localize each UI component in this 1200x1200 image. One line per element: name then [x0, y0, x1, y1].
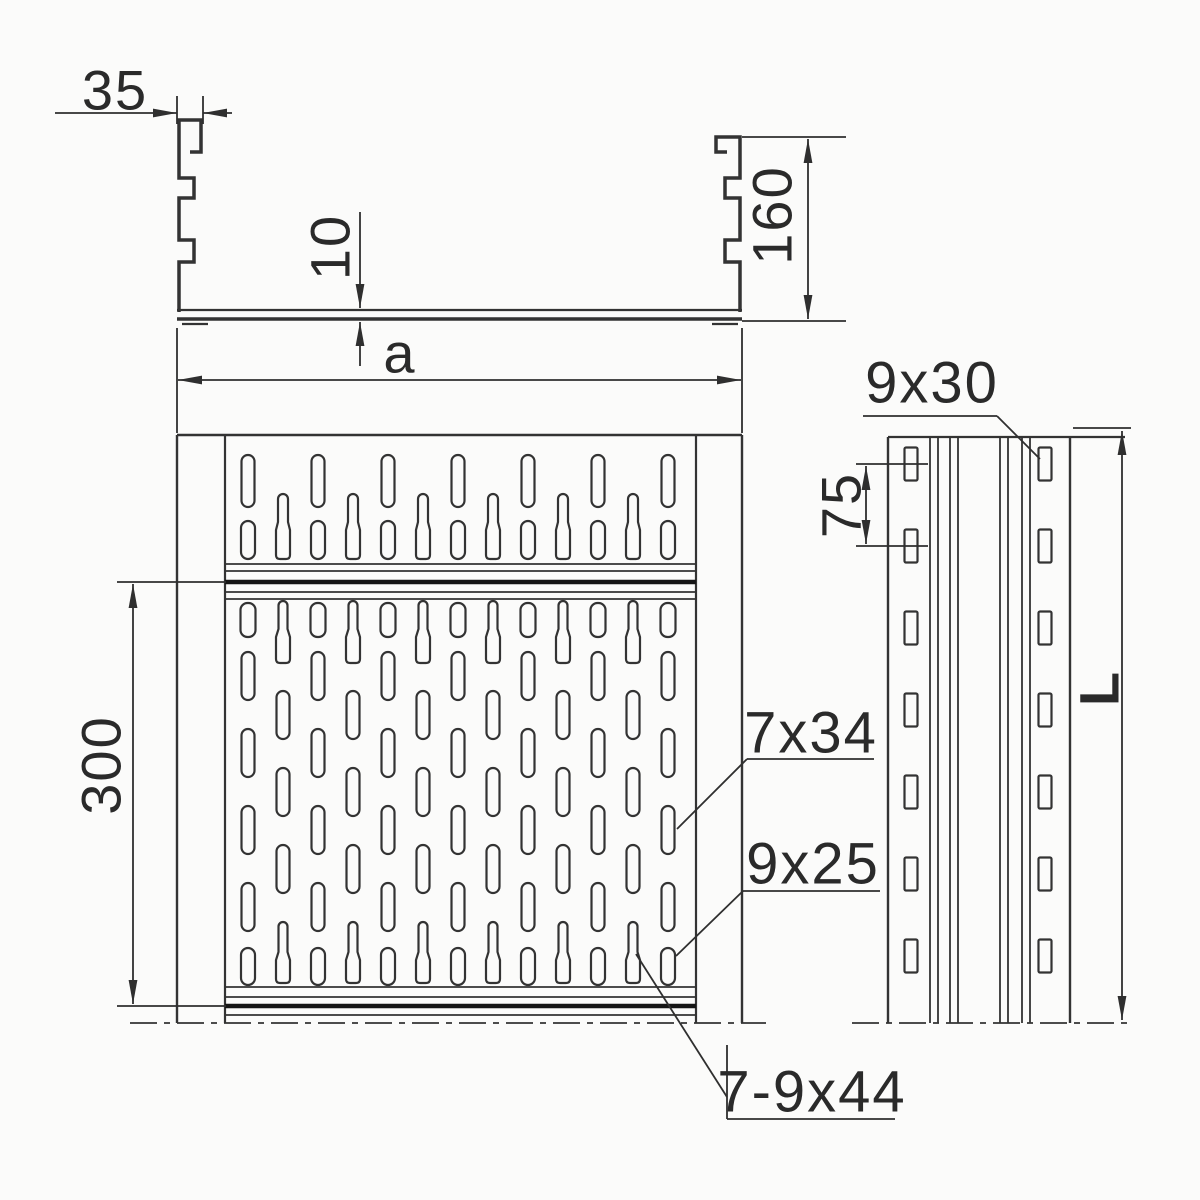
side-view	[888, 437, 1125, 1023]
dim-side-slot-spacing-label: 75	[810, 472, 873, 538]
right-wall-profile	[716, 137, 740, 312]
callout-slot-short	[676, 891, 880, 956]
callout-side-slot-label: 9x30	[865, 351, 999, 416]
dim-tray-width	[177, 328, 742, 433]
dim-pattern-length-label: 300	[70, 715, 133, 814]
cross-section-view	[177, 120, 742, 324]
callout-slot-long-label: 7x34	[744, 701, 878, 766]
cable-tray-drawing: 35 10 160	[0, 0, 1200, 1200]
dim-tray-length-label: L	[1068, 670, 1131, 706]
dim-flange-width-label: 35	[82, 59, 148, 122]
dim-tray-width-label: a	[383, 322, 416, 385]
dim-bottom-thickness-label: 10	[299, 214, 362, 280]
bottom-seam	[225, 987, 696, 1015]
dim-side-height-label: 160	[741, 165, 804, 264]
callout-slot-keyhole-label: 7-9x44	[717, 1060, 906, 1125]
plan-perforation-slots	[241, 455, 676, 985]
callout-slot-short-label: 9x25	[746, 832, 880, 897]
dim-tray-length	[1073, 428, 1131, 1020]
technical-drawing-page: 35 10 160	[0, 0, 1200, 1200]
callout-slot-long	[677, 759, 874, 829]
left-wall-profile	[179, 120, 201, 312]
dim-pattern-length	[117, 582, 226, 1006]
side-rib-lines	[930, 437, 1030, 1023]
top-seam	[225, 564, 696, 599]
plan-view	[177, 435, 742, 1023]
